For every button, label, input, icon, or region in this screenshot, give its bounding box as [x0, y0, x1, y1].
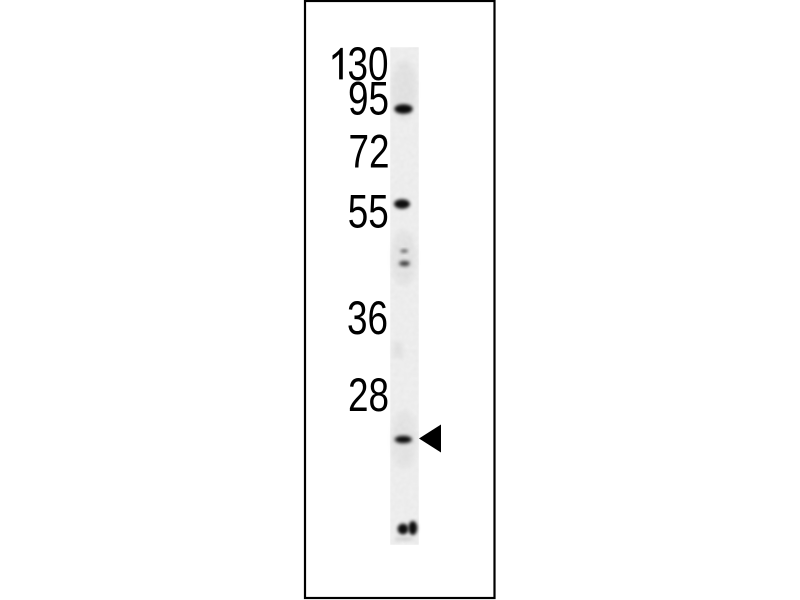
svg-text:72: 72 — [348, 125, 389, 177]
svg-text:36: 36 — [347, 292, 388, 344]
svg-text:95: 95 — [348, 72, 389, 124]
svg-text:55: 55 — [348, 185, 389, 237]
svg-text:28: 28 — [348, 369, 389, 421]
